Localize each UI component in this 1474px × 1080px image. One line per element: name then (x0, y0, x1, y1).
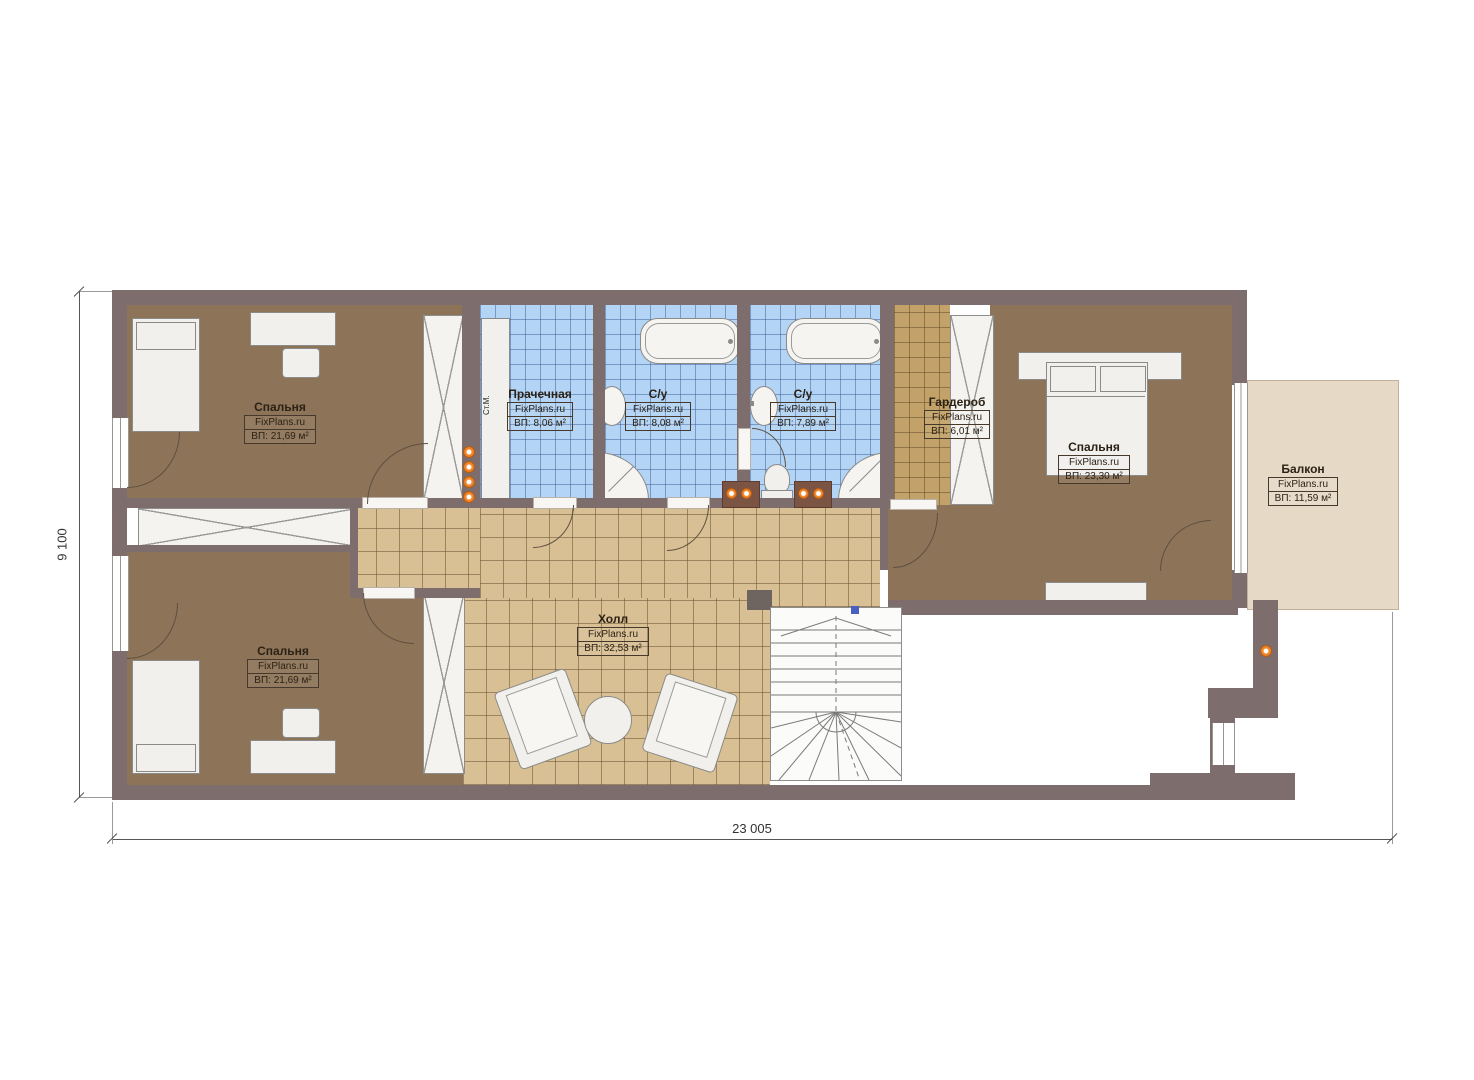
wall-corridor-seg2 (575, 498, 667, 508)
room-area: ВП: 23,30 м² (1059, 470, 1128, 483)
wall-right-upper (1232, 290, 1247, 385)
room-label-wardrobe: Гардероб FixPlans.ru ВП: 6,01 м² (912, 395, 1002, 439)
blanket-line (1047, 396, 1145, 397)
room-area: ВП: 21,69 м² (248, 674, 317, 687)
wall-laundry-bath1 (593, 305, 605, 500)
room-area: ВП: 21,69 м² (245, 430, 314, 443)
room-area: ВП: 11,59 м² (1269, 492, 1338, 505)
closet-between-bedrooms (138, 508, 355, 547)
room-name: Спальня (1068, 440, 1120, 454)
light-dot-entry (1260, 645, 1272, 657)
room-info-box: FixPlans.ru ВП: 8,08 м² (625, 402, 691, 431)
wall-corridor-bedroom-right (880, 508, 888, 570)
room-label-bedroom-bottom-left: Спальня FixPlans.ru ВП: 21,69 м² (228, 644, 338, 688)
room-info-box: FixPlans.ru ВП: 32,53 м² (577, 627, 648, 656)
room-area: ВП: 7,89 м² (771, 417, 835, 430)
wall-corridor-seg5 (830, 498, 895, 508)
pillow-top-left (136, 322, 196, 350)
door-threshold-bathroom2 (738, 428, 751, 470)
chair-top-left (282, 348, 320, 378)
bathtub-1 (640, 318, 740, 364)
room-label-balcony: Балкон FixPlans.ru ВП: 11,59 м² (1258, 462, 1348, 506)
room-name: С/у (794, 387, 813, 401)
bathtub-1-tap (728, 339, 733, 344)
shower-2-mark (849, 459, 882, 492)
wall-bedroom2-top-left (127, 545, 353, 552)
vanity-1-light-2 (741, 488, 752, 499)
room-label-laundry: Прачечная FixPlans.ru ВП: 8,06 м² (495, 387, 585, 431)
watermark: FixPlans.ru (245, 416, 314, 430)
light-dot-2 (463, 461, 475, 473)
watermark: FixPlans.ru (925, 411, 989, 425)
armchair-left-seat (506, 677, 578, 755)
room-info-box: FixPlans.ru ВП: 7,89 м² (770, 402, 836, 431)
wall-bedroom2-top-seg2 (413, 588, 480, 598)
staircase (770, 607, 902, 781)
dimension-line-horizontal (112, 839, 1392, 840)
wall-stair-stub (747, 590, 772, 610)
armchair-right-seat (656, 681, 727, 758)
extension-line-top (79, 291, 112, 292)
room-info-box: FixPlans.ru ВП: 21,69 м² (247, 659, 318, 688)
coffee-table (584, 696, 632, 744)
light-dot-3 (463, 476, 475, 488)
light-dot-4 (463, 491, 475, 503)
vanity-2-light-2 (813, 488, 824, 499)
room-label-bathroom-2: С/у FixPlans.ru ВП: 7,89 м² (763, 387, 843, 431)
staircase-drawing (771, 608, 901, 780)
bathtub-2-tap (874, 339, 879, 344)
pillow-bottom-left (136, 744, 196, 772)
watermark: FixPlans.ru (578, 628, 647, 642)
dimension-width: 23 005 (692, 821, 812, 836)
watermark: FixPlans.ru (626, 403, 690, 417)
desk-bottom-left (250, 740, 336, 774)
room-info-box: FixPlans.ru ВП: 23,30 м² (1058, 455, 1129, 484)
bathtub-2 (786, 318, 886, 364)
chair-bottom-left (282, 708, 320, 738)
wall-corridor-left-end (350, 508, 358, 598)
wall-bath1-bath2 (737, 305, 750, 500)
window-balcony-door (1234, 383, 1248, 573)
closet-bedroom-top-left (423, 315, 464, 500)
room-area: ВП: 6,01 м² (925, 425, 989, 438)
room-name: Спальня (254, 400, 306, 414)
wall-corridor-seg4 (757, 498, 795, 508)
window-bottom-right (1212, 723, 1235, 765)
light-dot-1 (463, 446, 475, 458)
bathtub-2-inner (791, 323, 881, 359)
wall-bedroom1-bottom-seg2 (427, 498, 462, 508)
room-label-hall: Холл FixPlans.ru ВП: 32,53 м² (568, 612, 658, 656)
room-area: ВП: 8,06 м² (508, 417, 572, 430)
room-area: ВП: 32,53 м² (578, 642, 647, 655)
room-label-bathroom-1: С/у FixPlans.ru ВП: 8,08 м² (618, 387, 698, 431)
wall-left (112, 290, 127, 800)
room-label-bedroom-right: Спальня FixPlans.ru ВП: 23,30 м² (1044, 440, 1144, 484)
room-info-box: FixPlans.ru ВП: 8,06 м² (507, 402, 573, 431)
wall-bedroom-right-bottom (888, 600, 1238, 615)
wall-top (112, 290, 1247, 305)
wall-bedroom2-top-seg1 (353, 588, 363, 598)
room-info-box: FixPlans.ru ВП: 11,59 м² (1268, 477, 1339, 506)
wall-step-horizontal (1208, 688, 1278, 718)
room-label-bedroom-top-left: Спальня FixPlans.ru ВП: 21,69 м² (225, 400, 335, 444)
room-info-box: FixPlans.ru ВП: 21,69 м² (244, 415, 315, 444)
room-info-box: FixPlans.ru ВП: 6,01 м² (924, 410, 990, 439)
stair-marker (851, 606, 859, 614)
watermark: FixPlans.ru (771, 403, 835, 417)
room-name: Прачечная (508, 387, 572, 401)
floor-plan: Ст.М. (0, 0, 1474, 1080)
dimension-height: 9 100 (55, 510, 70, 580)
wall-bath2-wardrobe (880, 305, 894, 508)
desk-top-left (250, 312, 336, 346)
room-area: ВП: 8,08 м² (626, 417, 690, 430)
watermark: FixPlans.ru (1059, 456, 1128, 470)
vanity-1-light-1 (726, 488, 737, 499)
pillow-right (1100, 366, 1146, 392)
closet-bedroom-bottom-left (423, 592, 465, 774)
extension-line-bottom (79, 797, 112, 798)
vanity-2-light-1 (798, 488, 809, 499)
wall-corridor-seg1 (480, 498, 533, 508)
room-name: Холл (598, 612, 628, 626)
room-name: Балкон (1281, 462, 1324, 476)
wall-bedroom1-bottom-seg1 (127, 498, 362, 508)
watermark: FixPlans.ru (248, 660, 317, 674)
extension-line-right (1392, 612, 1393, 844)
door-leaf-bedroom-right (890, 499, 937, 510)
floor-corridor (353, 505, 480, 598)
dimension-line-vertical (79, 292, 80, 798)
room-name: С/у (649, 387, 668, 401)
wall-bottom (112, 785, 1295, 800)
watermark: FixPlans.ru (508, 403, 572, 417)
wall-corridor-seg3 (708, 498, 722, 508)
room-name: Спальня (257, 644, 309, 658)
watermark: FixPlans.ru (1269, 478, 1338, 492)
pillow-left (1050, 366, 1096, 392)
bathtub-1-inner (645, 323, 735, 359)
shower-1-mark (608, 459, 641, 492)
room-name: Гардероб (929, 395, 986, 409)
